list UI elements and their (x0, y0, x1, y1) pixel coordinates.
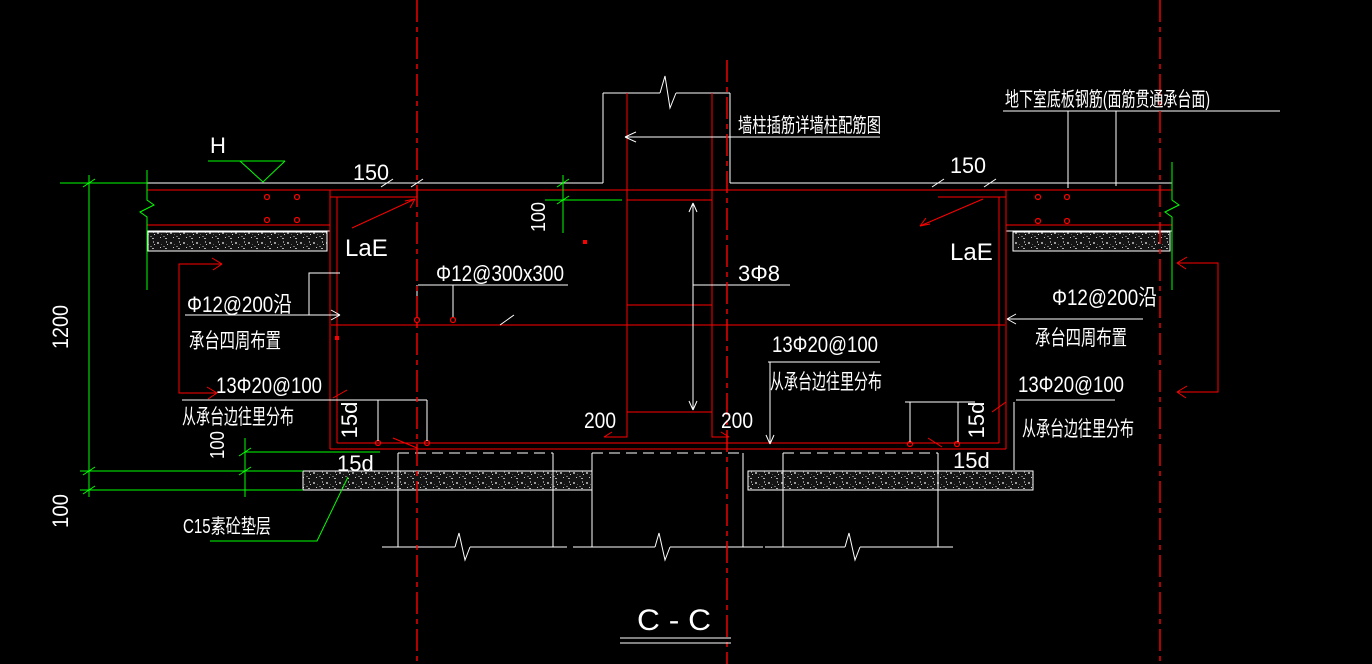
column-dowel-rebar (604, 93, 729, 437)
bedding-note-label: C15素砼垫层 (183, 515, 271, 538)
bottom-bar-mid-line2: 从承台边往里分布 (770, 371, 882, 394)
slab-rebar (147, 190, 1172, 225)
perimeter-left-line1: Φ12@200沿 (187, 292, 292, 317)
bottom-rebar-hooks (333, 390, 1006, 448)
texts: 地下室底板钢筋(面筋贯通承台面) 墙柱插筋详墙柱配筋图 H 150 150 La… (48, 88, 1210, 637)
hook-15d-right: 15d (953, 448, 990, 473)
section-drawing: 地下室底板钢筋(面筋贯通承台面) 墙柱插筋详墙柱配筋图 H 150 150 La… (0, 0, 1372, 664)
piles (382, 453, 953, 560)
hook-15d-rot-right: 15d (964, 402, 989, 439)
perimeter-right-line2: 承台四周布置 (1035, 327, 1127, 350)
wall-note-label: 墙柱插筋详墙柱配筋图 (738, 114, 881, 137)
perimeter-right-line1: Φ12@200沿 (1052, 285, 1157, 310)
slab-note-label: 地下室底板钢筋(面筋贯通承台面) (1005, 88, 1210, 111)
section-title: C - C (637, 604, 711, 637)
dim-200-left: 200 (584, 408, 616, 433)
dim-100-capgap: 100 (207, 431, 229, 459)
hook-15d-rot-left: 15d (337, 402, 362, 439)
tie-label: 3Φ8 (738, 261, 780, 286)
cut-break-edges (140, 162, 1179, 290)
dim-150-right: 150 (950, 153, 986, 178)
cad-canvas: 地下室底板钢筋(面筋贯通承台面) 墙柱插筋详墙柱配筋图 H 150 150 La… (0, 0, 1372, 664)
hook-15d-left: 15d (337, 451, 374, 476)
dim-1200: 1200 (48, 305, 73, 349)
mesh-label: Φ12@300x300 (436, 261, 564, 286)
bottom-bar-left-line1: 13Φ20@100 (216, 373, 322, 398)
section-title-underline (620, 638, 731, 643)
dim-200-right: 200 (721, 408, 753, 433)
level-mark-label: H (210, 133, 226, 158)
cap-perimeter-rebar (331, 197, 1005, 443)
label-bracket-right (1177, 257, 1218, 398)
pile-cap-outline (330, 190, 1006, 449)
lae-right-label: LaE (950, 239, 993, 266)
dim-100-bedding: 100 (48, 494, 73, 528)
dim-100-top: 100 (528, 202, 550, 232)
rebar-section-dots (265, 195, 1070, 341)
slab-hatch-right (1013, 232, 1170, 251)
bottom-bar-right-line1: 13Φ20@100 (1018, 372, 1124, 397)
bottom-bar-left-line2: 从承台边往里分布 (182, 406, 294, 429)
bottom-bar-mid-line1: 13Φ20@100 (772, 332, 878, 357)
dim-150-left: 150 (353, 160, 389, 185)
lae-left-label: LaE (345, 235, 388, 262)
bottom-bar-right-line2: 从承台边往里分布 (1022, 418, 1134, 441)
level-symbol (208, 161, 285, 182)
slab-rebar-anchor-hooks (330, 197, 1006, 228)
column-break-symbol (660, 76, 676, 108)
perimeter-left-line2: 承台四周布置 (189, 330, 281, 353)
bedding-hatch (303, 471, 1033, 490)
slab-hatch-left (148, 232, 327, 251)
